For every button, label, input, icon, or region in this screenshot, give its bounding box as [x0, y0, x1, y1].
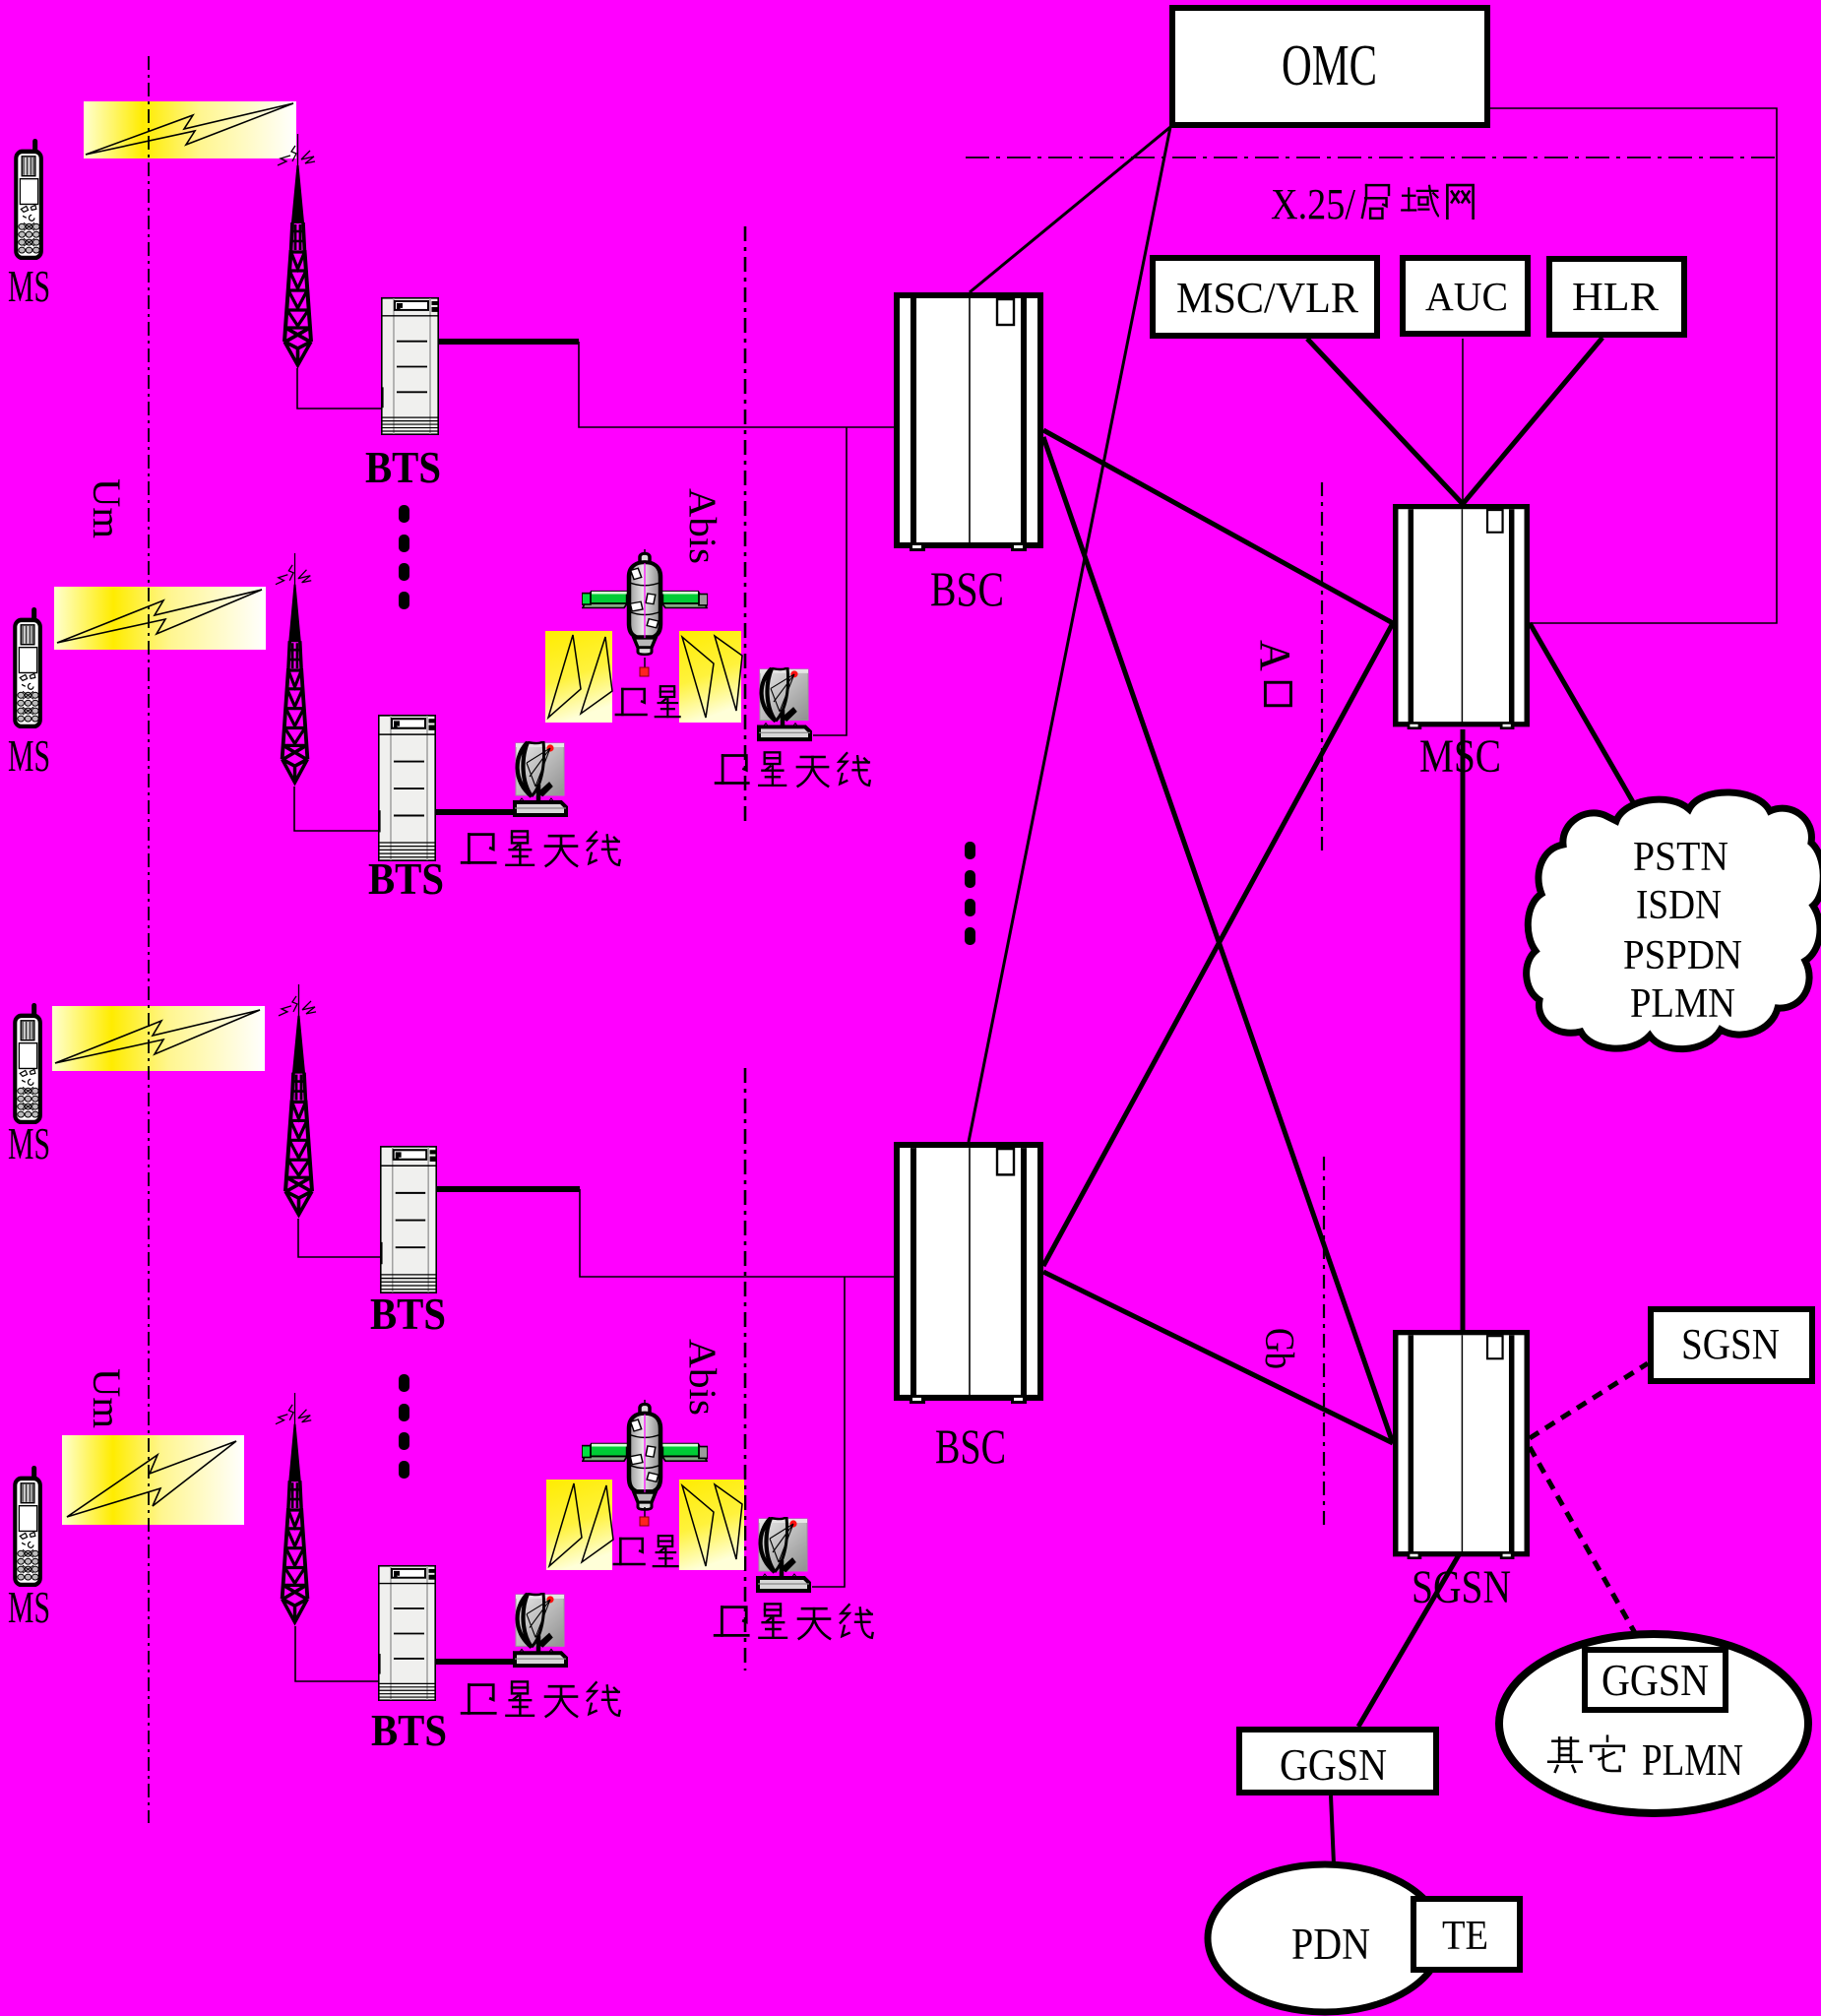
svg-text:Um: Um — [85, 478, 129, 538]
svg-text:PLMN: PLMN — [1642, 1734, 1743, 1785]
svg-text:BTS: BTS — [371, 1705, 447, 1755]
svg-text:PLMN: PLMN — [1630, 981, 1735, 1027]
svg-text:PDN: PDN — [1291, 1920, 1370, 1969]
svg-text:TE: TE — [1442, 1914, 1488, 1959]
svg-text:BTS: BTS — [368, 853, 444, 904]
svg-text:X.25/: X.25/ — [1271, 180, 1356, 228]
svg-text:SGSN: SGSN — [1412, 1561, 1511, 1613]
svg-text:MSC/VLR: MSC/VLR — [1176, 274, 1359, 322]
svg-text:Abis: Abis — [681, 488, 723, 564]
svg-text:BTS: BTS — [370, 1289, 446, 1339]
svg-text:Um: Um — [85, 1368, 129, 1428]
svg-text:PSPDN: PSPDN — [1623, 933, 1742, 978]
svg-text:BTS: BTS — [365, 442, 441, 492]
svg-text:BSC: BSC — [935, 1418, 1006, 1474]
svg-text:MS: MS — [8, 730, 50, 781]
svg-text:ISDN: ISDN — [1636, 883, 1722, 928]
svg-text:PSTN: PSTN — [1633, 835, 1728, 880]
svg-text:GGSN: GGSN — [1601, 1655, 1709, 1705]
svg-text:AUC: AUC — [1425, 274, 1508, 319]
svg-text:Abis: Abis — [681, 1339, 723, 1416]
svg-text:Gb: Gb — [1256, 1328, 1301, 1369]
svg-text:GGSN: GGSN — [1280, 1739, 1387, 1790]
svg-text:MSC: MSC — [1419, 730, 1501, 783]
svg-text:MS: MS — [8, 261, 50, 311]
svg-text:SGSN: SGSN — [1681, 1320, 1780, 1368]
svg-text:HLR: HLR — [1572, 274, 1660, 319]
svg-text:OMC: OMC — [1282, 32, 1377, 97]
svg-text:MS: MS — [8, 1118, 50, 1168]
svg-text:MS: MS — [8, 1582, 50, 1632]
svg-text:A: A — [1251, 640, 1299, 671]
svg-text:BSC: BSC — [930, 561, 1004, 616]
